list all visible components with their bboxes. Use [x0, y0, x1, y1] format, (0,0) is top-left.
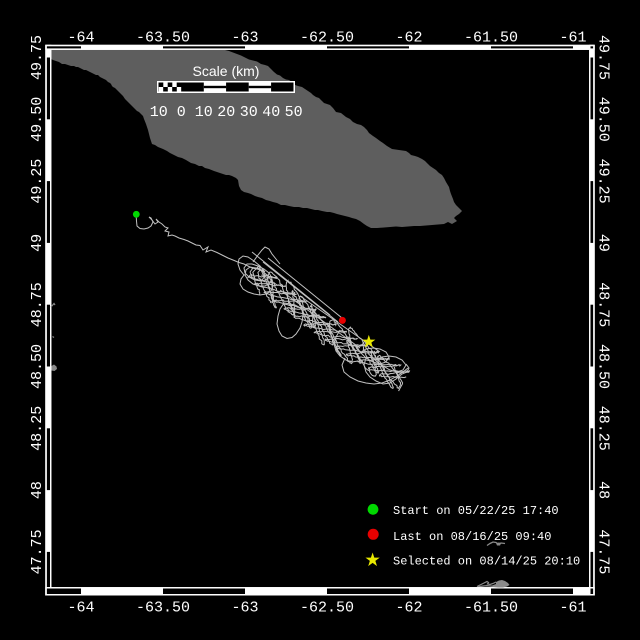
svg-text:10: 10 — [195, 104, 213, 121]
svg-text:50: 50 — [285, 104, 303, 121]
svg-text:47.75: 47.75 — [29, 529, 46, 574]
svg-text:-62.50: -62.50 — [300, 30, 354, 47]
svg-text:-61.50: -61.50 — [464, 600, 518, 617]
svg-text:-61: -61 — [559, 30, 586, 47]
svg-text:Start on 05/22/25 17:40: Start on 05/22/25 17:40 — [393, 504, 559, 518]
svg-text:49.75: 49.75 — [29, 35, 46, 80]
svg-text:-61.50: -61.50 — [464, 30, 518, 47]
svg-text:49.75: 49.75 — [595, 35, 612, 80]
svg-text:Selected on 08/14/25 20:10: Selected on 08/14/25 20:10 — [393, 555, 580, 569]
svg-text:49.25: 49.25 — [29, 159, 46, 204]
svg-text:-62.50: -62.50 — [300, 600, 354, 617]
svg-text:Last on 08/16/25 09:40: Last on 08/16/25 09:40 — [393, 530, 551, 544]
svg-text:-63: -63 — [231, 30, 258, 47]
svg-text:-63.50: -63.50 — [136, 600, 190, 617]
svg-text:48.50: 48.50 — [29, 344, 46, 389]
svg-text:-61: -61 — [559, 600, 586, 617]
svg-text:48.50: 48.50 — [595, 344, 612, 389]
svg-text:-62: -62 — [395, 600, 422, 617]
svg-text:49: 49 — [595, 234, 612, 252]
svg-text:-64: -64 — [67, 600, 94, 617]
svg-text:49.50: 49.50 — [29, 97, 46, 142]
svg-text:49.50: 49.50 — [595, 97, 612, 142]
svg-text:48.25: 48.25 — [29, 406, 46, 451]
svg-text:48: 48 — [595, 481, 612, 499]
svg-text:10: 10 — [150, 104, 168, 121]
svg-text:-63.50: -63.50 — [136, 30, 190, 47]
svg-text:48: 48 — [29, 481, 46, 499]
svg-text:49.25: 49.25 — [595, 159, 612, 204]
svg-text:-64: -64 — [67, 30, 94, 47]
svg-text:47.75: 47.75 — [595, 529, 612, 574]
svg-text:-62: -62 — [395, 30, 422, 47]
svg-text:48.25: 48.25 — [595, 406, 612, 451]
svg-text:20: 20 — [217, 104, 235, 121]
svg-text:0: 0 — [177, 104, 186, 121]
svg-text:49: 49 — [29, 234, 46, 252]
svg-text:-63: -63 — [231, 600, 258, 617]
svg-text:30: 30 — [240, 104, 258, 121]
svg-text:48.75: 48.75 — [595, 282, 612, 327]
svg-text:40: 40 — [262, 104, 280, 121]
svg-text:Scale (km): Scale (km) — [193, 63, 260, 79]
svg-text:48.75: 48.75 — [29, 282, 46, 327]
